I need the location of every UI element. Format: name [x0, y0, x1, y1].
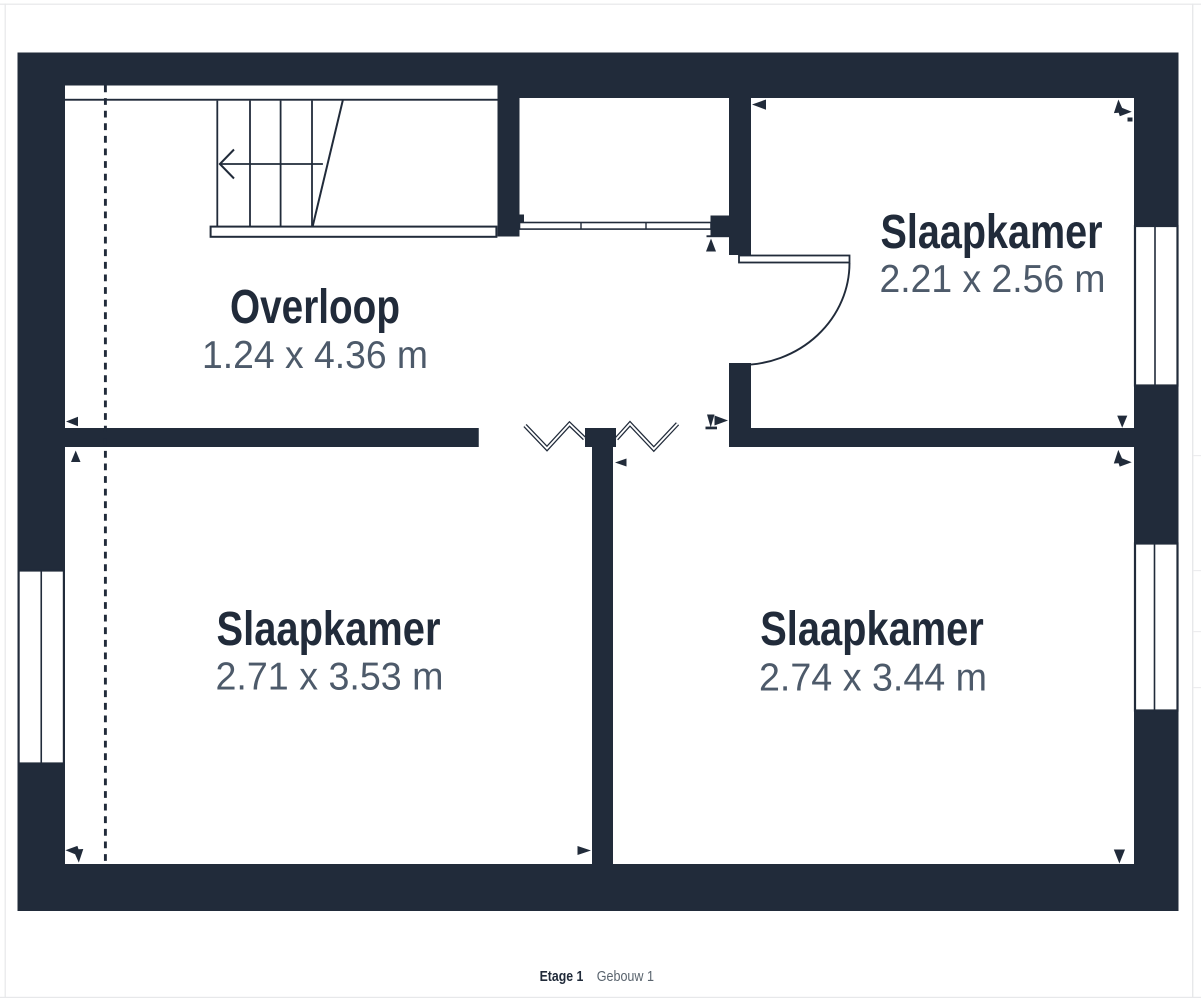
- svg-text:2.71 x 3.53 m: 2.71 x 3.53 m: [216, 656, 444, 699]
- svg-text:2.74 x 3.44 m: 2.74 x 3.44 m: [759, 657, 987, 700]
- svg-text:Slaapkamer: Slaapkamer: [217, 603, 441, 656]
- svg-text:Etage 1: Etage 1: [540, 969, 584, 985]
- svg-text:Slaapkamer: Slaapkamer: [881, 206, 1103, 259]
- svg-text:2.21 x 2.56 m: 2.21 x 2.56 m: [880, 258, 1106, 301]
- svg-text:Overloop: Overloop: [230, 281, 400, 334]
- svg-text:1.24 x 4.36 m: 1.24 x 4.36 m: [202, 334, 428, 377]
- svg-text:Gebouw 1: Gebouw 1: [597, 969, 654, 985]
- svg-text:Slaapkamer: Slaapkamer: [760, 603, 984, 656]
